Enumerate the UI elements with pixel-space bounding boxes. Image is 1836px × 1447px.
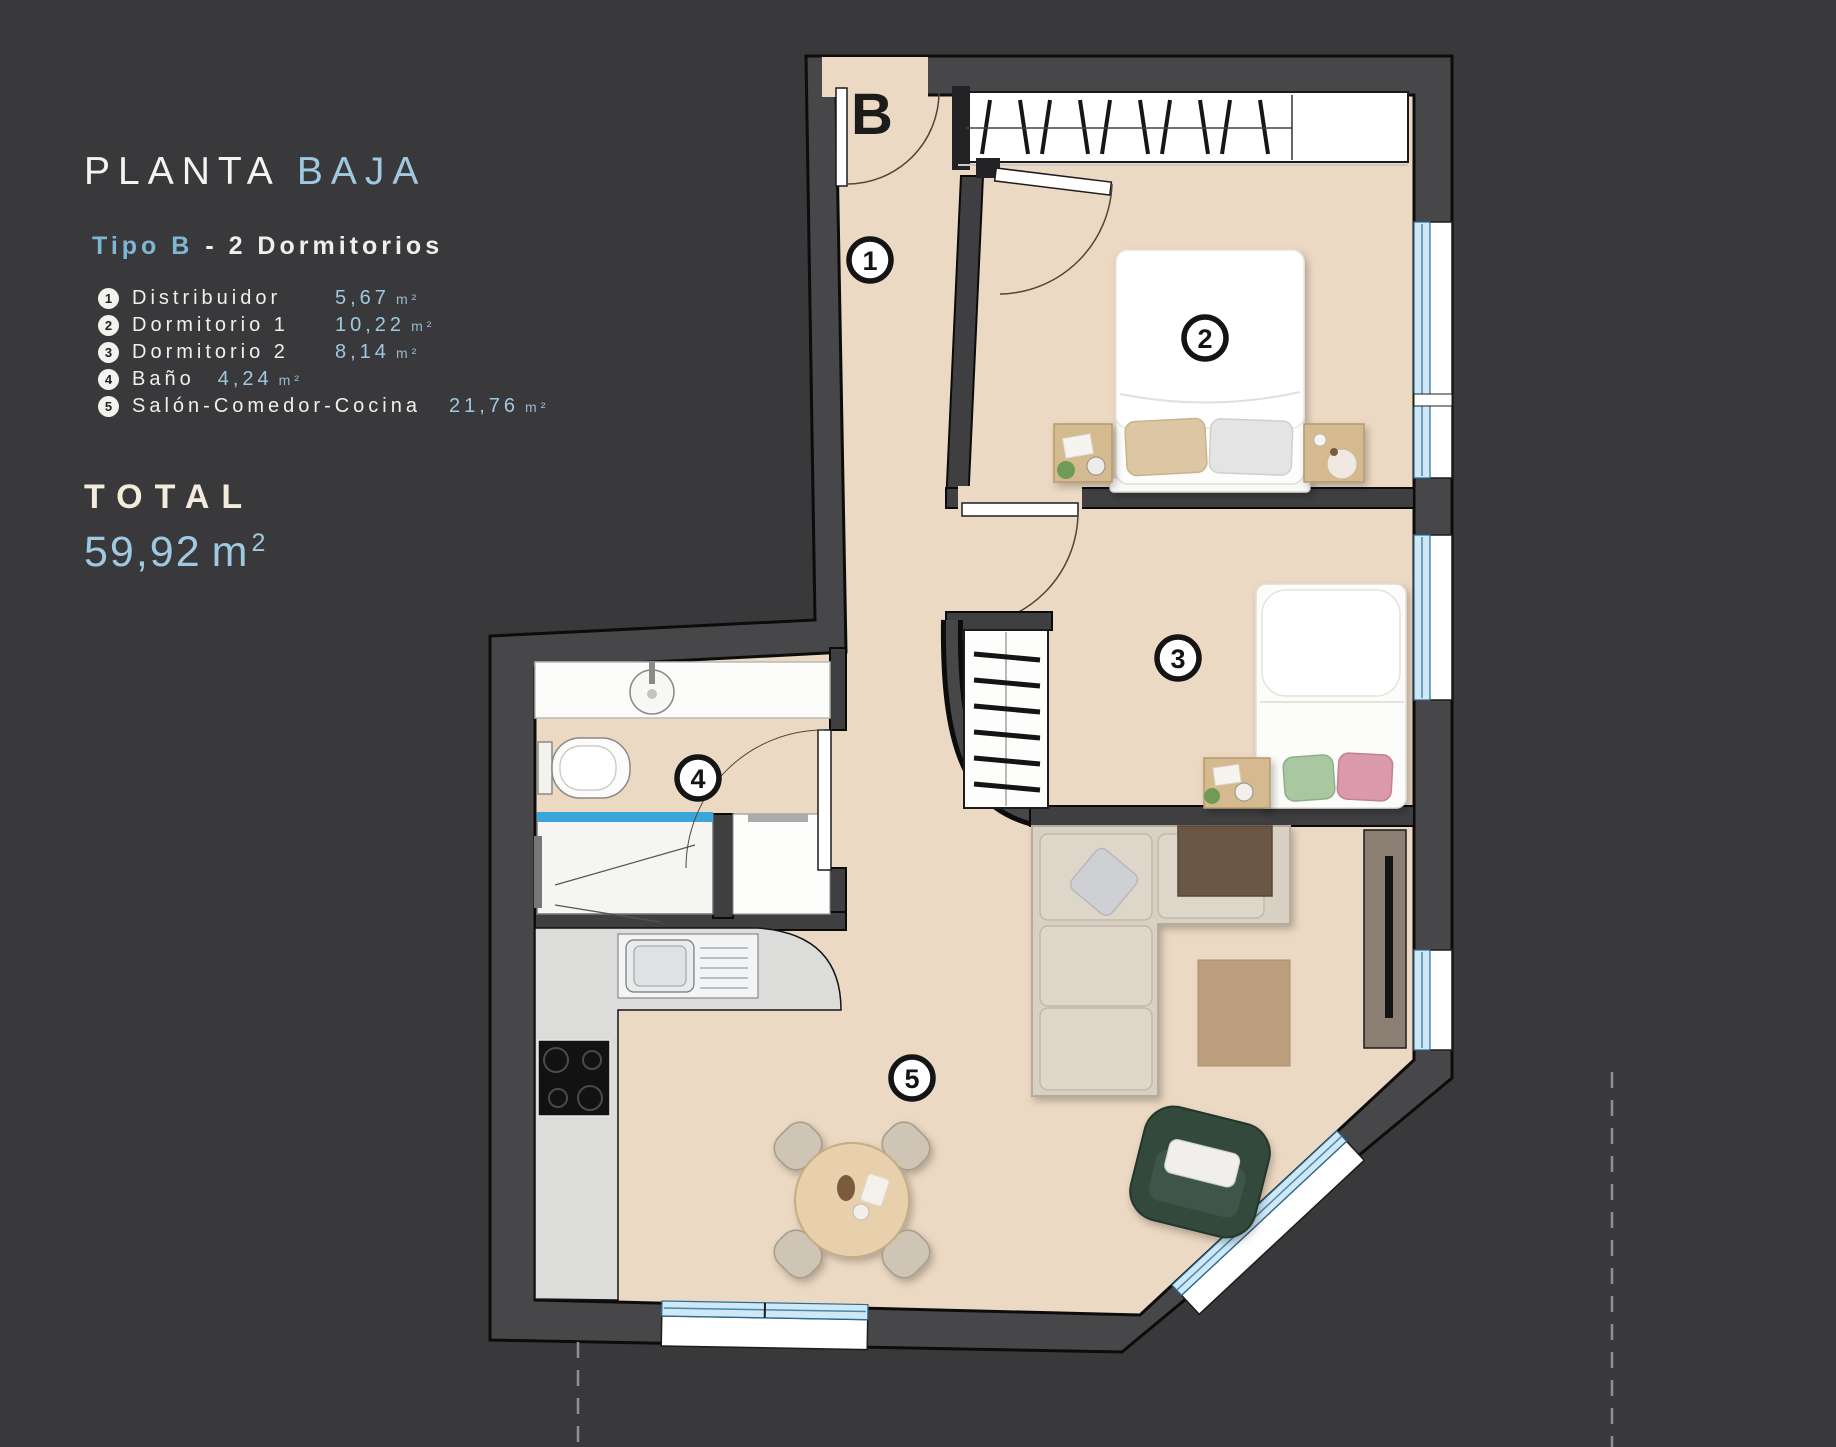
toilet — [538, 738, 630, 798]
window-bottom — [661, 1301, 868, 1350]
kitchen-sink — [618, 934, 758, 998]
svg-text:3: 3 — [1170, 644, 1185, 674]
room-marker-2: 2 — [1184, 317, 1226, 359]
legend-name: Distribuidor — [132, 287, 335, 310]
nightstand-left — [1054, 424, 1112, 482]
legend-badge-4: 4 — [98, 369, 119, 390]
total-label: TOTAL — [84, 478, 254, 517]
legend-name: Dormitorio 2 — [132, 341, 335, 364]
page: { "info_panel": { "title_main": "PLANTA"… — [0, 0, 1836, 1447]
wall-bath-right-upper — [830, 648, 846, 730]
dining-table — [795, 1143, 909, 1257]
desk-bedroom2 — [1204, 758, 1270, 808]
bath-counter — [535, 662, 830, 718]
tv-cabinet — [1364, 830, 1406, 1048]
room-marker-1: 1 — [849, 239, 891, 281]
page-title: PLANTABAJA — [84, 150, 426, 194]
wardrobe-bedroom2 — [964, 630, 1048, 808]
title-main: PLANTA — [84, 150, 281, 193]
legend-name: Baño — [132, 368, 195, 391]
legend-area: 4,24 — [218, 368, 273, 391]
legend-badge-1: 1 — [98, 288, 119, 309]
bed-single — [1256, 584, 1406, 808]
svg-text:1: 1 — [862, 246, 877, 276]
window-bedroom2 — [1414, 535, 1452, 700]
svg-text:5: 5 — [904, 1064, 919, 1094]
title-accent: BAJA — [297, 150, 427, 193]
cooktop — [538, 1040, 610, 1116]
legend-name: Salón-Comedor-Cocina — [132, 395, 421, 418]
legend-unit: m² — [279, 372, 303, 388]
room-marker-5: 5 — [891, 1057, 933, 1099]
bath-closet — [733, 814, 830, 914]
legend-area: 8,14 — [335, 341, 390, 364]
wall-shower-closet — [713, 814, 733, 918]
window-living-small — [1414, 950, 1452, 1050]
plan-subtitle: Tipo B- 2 Dormitorios — [92, 232, 443, 261]
svg-text:2: 2 — [1197, 324, 1212, 354]
floor-plan: B — [440, 30, 1640, 1447]
subtitle-accent: Tipo B — [92, 232, 193, 260]
legend-badge-2: 2 — [98, 315, 119, 336]
nightstand-right — [1304, 424, 1364, 482]
legend-name: Dormitorio 1 — [132, 314, 335, 337]
window-bedroom1 — [1414, 222, 1452, 478]
total-value: 59,92m2 — [84, 528, 267, 577]
legend-area: 10,22 — [335, 314, 405, 337]
wall-bedroom2-living — [1030, 806, 1414, 826]
subtitle-rest: - 2 Dormitorios — [205, 232, 443, 260]
legend-badge-5: 5 — [98, 396, 119, 417]
bed-double — [1110, 250, 1310, 492]
total-unit: m2 — [212, 528, 268, 576]
room-marker-3: 3 — [1157, 637, 1199, 679]
room-marker-4: 4 — [677, 757, 719, 799]
wall-bath-right-lower — [830, 868, 846, 916]
legend-unit: m² — [411, 318, 435, 334]
legend-badge-3: 3 — [98, 342, 119, 363]
tv — [1385, 856, 1393, 1018]
entrance-unit-label: B — [851, 82, 893, 147]
legend-area: 5,67 — [335, 287, 390, 310]
rug — [1198, 960, 1290, 1066]
wardrobe-entry — [952, 86, 1408, 170]
legend-unit: m² — [396, 345, 420, 361]
total-number: 59,92 — [84, 528, 202, 576]
legend-unit: m² — [396, 291, 420, 307]
svg-text:4: 4 — [690, 764, 705, 794]
